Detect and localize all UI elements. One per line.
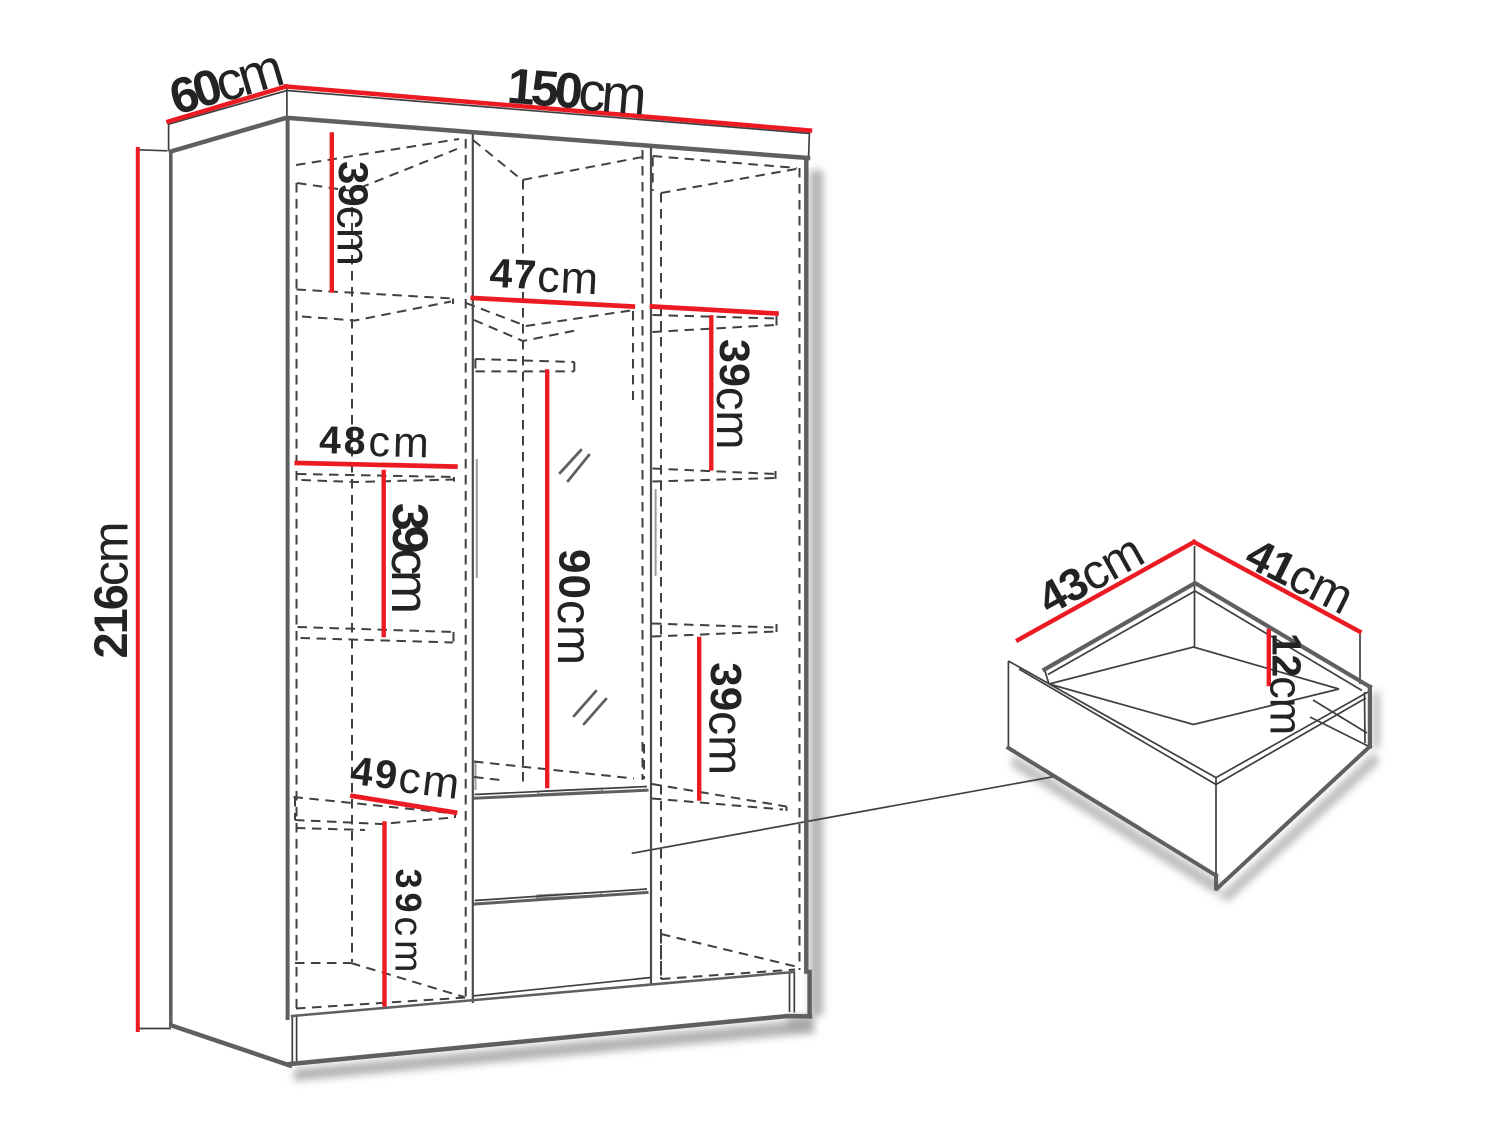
svg-text:39cm: 39cm: [328, 161, 380, 265]
svg-text:90cm: 90cm: [548, 549, 601, 666]
svg-text:12cm: 12cm: [1261, 633, 1312, 735]
svg-text:39cm: 39cm: [707, 339, 760, 450]
svg-text:48cm: 48cm: [319, 417, 433, 468]
svg-text:216cm: 216cm: [83, 523, 139, 658]
svg-text:47cm: 47cm: [488, 247, 600, 304]
svg-text:39cm: 39cm: [380, 503, 439, 611]
svg-text:39cm: 39cm: [699, 662, 752, 775]
svg-text:39cm: 39cm: [387, 868, 430, 976]
